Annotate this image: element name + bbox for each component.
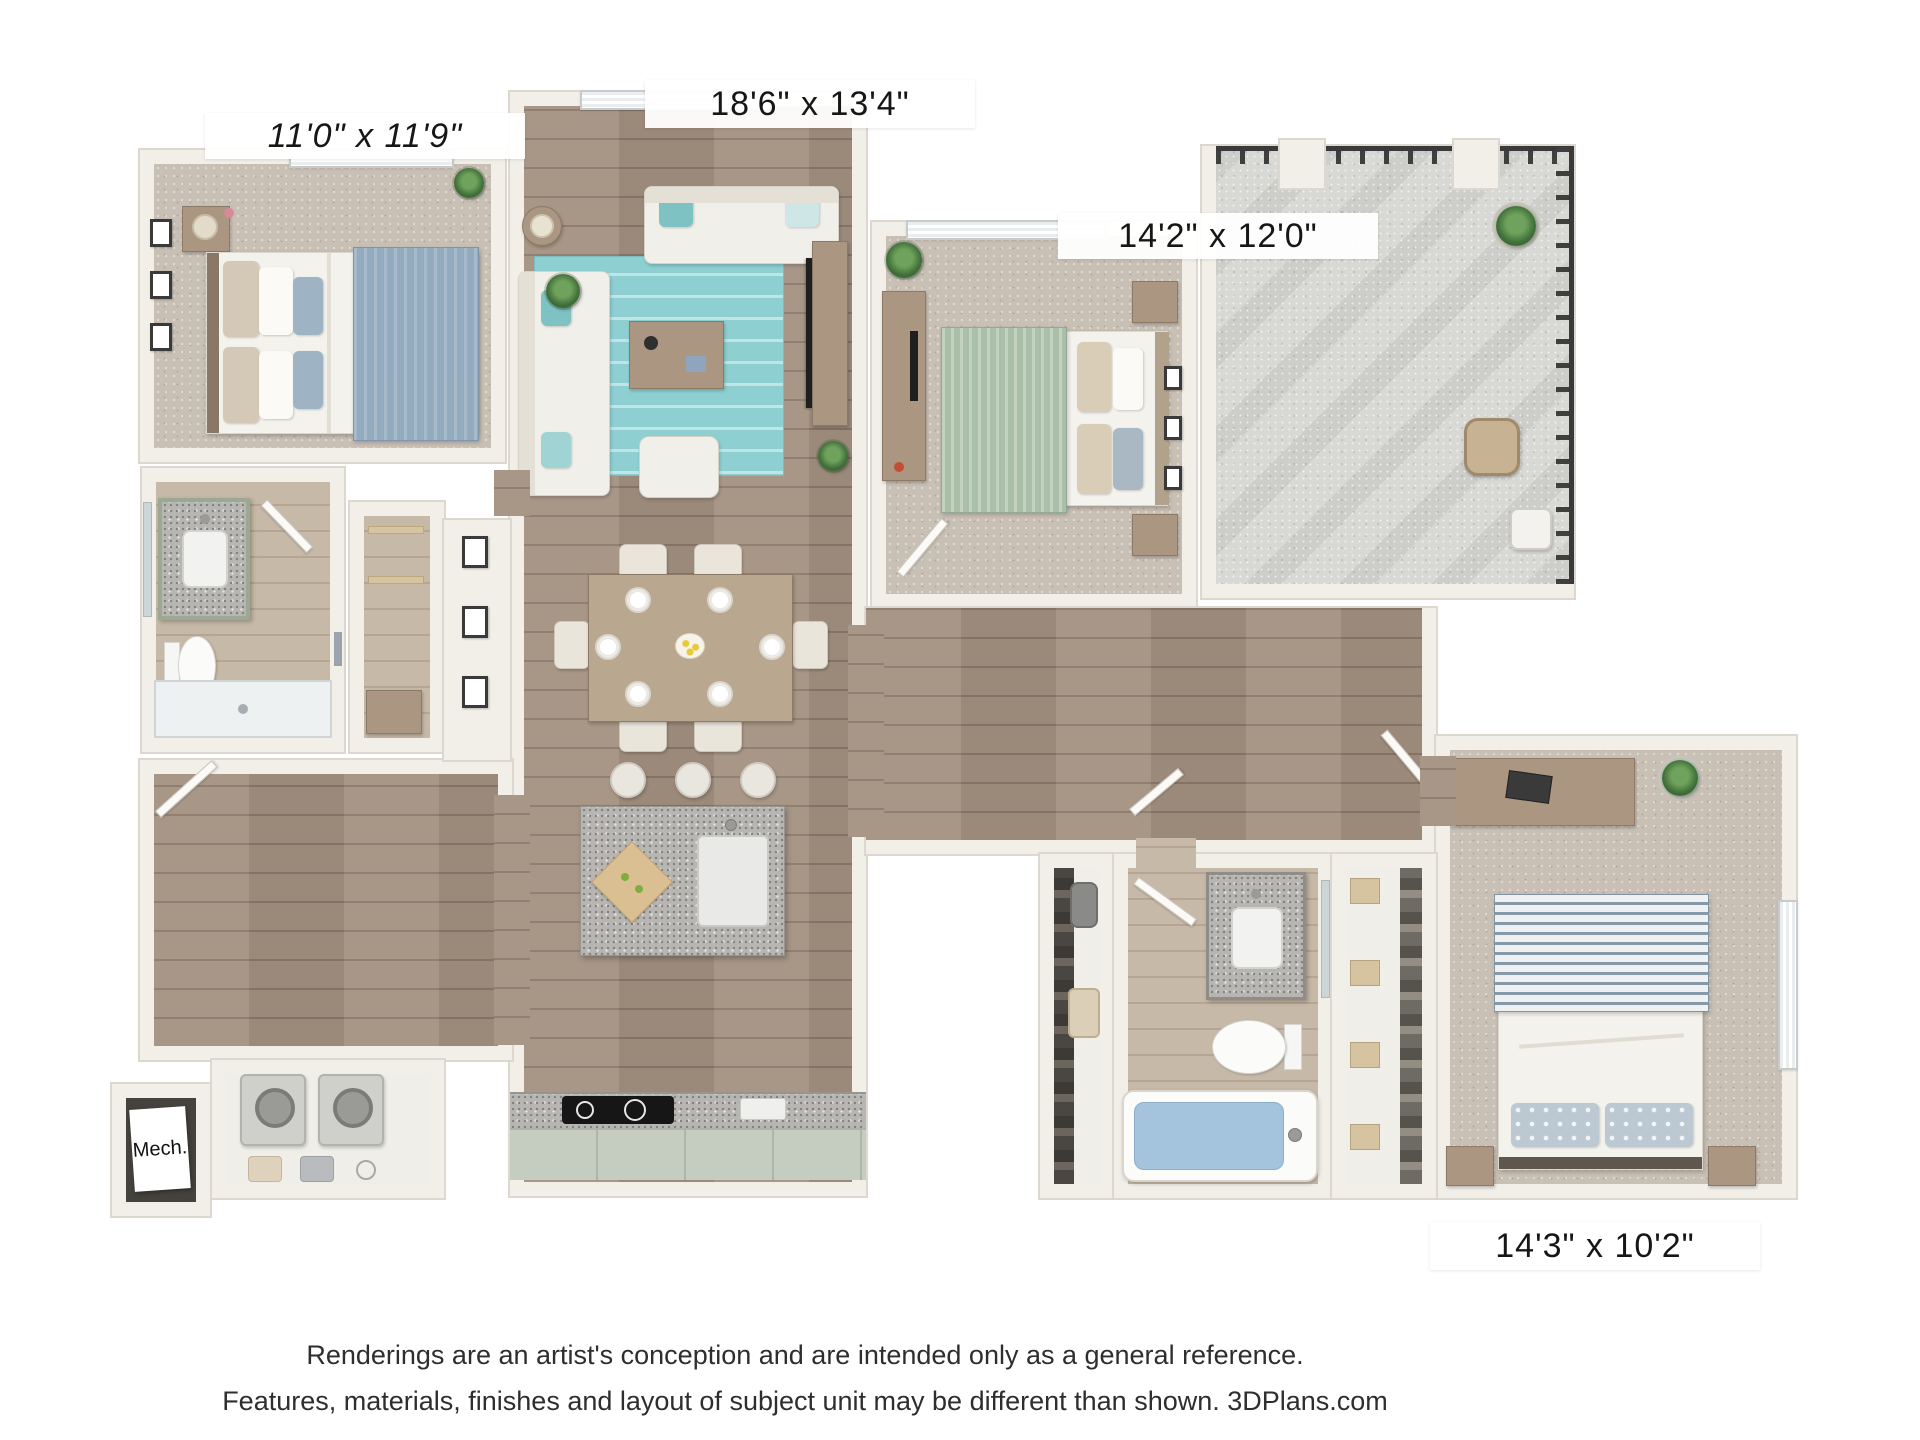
living-sofa-top	[644, 186, 839, 264]
bedroom1-dimension-text: 11'0" x 11'9"	[268, 117, 462, 156]
bedroom-2	[872, 222, 1196, 608]
mech-label-panel: Mech.	[129, 1106, 191, 1192]
disclaimer: Renderings are an artist's conception an…	[0, 1332, 1610, 1424]
bedroom2-bed	[946, 331, 1168, 506]
living-tv	[806, 258, 812, 408]
closet-dresser	[366, 690, 422, 734]
bedroom3-dimension-text: 14'3" x 10'2"	[1495, 1227, 1694, 1266]
mech-room: Mech.	[112, 1084, 210, 1216]
bedroom2-wall-art-icon	[1164, 466, 1182, 490]
bedroom3-plant-icon	[1662, 760, 1698, 796]
closet3-box	[1350, 1124, 1380, 1150]
bedroom1-pillow	[223, 261, 259, 337]
bedroom2-dimension-text: 14'2" x 12'0"	[1118, 217, 1317, 256]
coffee-table-book	[686, 356, 706, 372]
plate	[595, 634, 621, 660]
shower-drain	[238, 704, 248, 714]
bathroom1-towel	[334, 632, 342, 666]
washer	[240, 1074, 306, 1146]
bedroom2-flower	[894, 462, 904, 472]
island-cutting-board	[591, 841, 673, 923]
living-lamp	[530, 214, 554, 238]
bathroom2-mirror	[1321, 880, 1330, 998]
bedroom3-nightstand	[1446, 1146, 1494, 1186]
closet-shelf	[368, 576, 424, 584]
closet3-box	[1350, 878, 1380, 904]
living-dimension-text: 18'6" x 13'4"	[710, 85, 909, 124]
floorplan-page: Mech. 11'0" x 11'9" 18'6" x 13'4" 14'2" …	[0, 0, 1920, 1440]
bedroom1-bed	[206, 252, 478, 434]
cutting-board-lime	[635, 885, 643, 893]
living-coffee-table	[629, 321, 724, 389]
opening-living-hallway	[848, 625, 884, 837]
opening-hall-living	[494, 470, 530, 516]
bedroom2-pillow	[1113, 348, 1143, 410]
island-stool	[675, 762, 711, 798]
bedroom3-pillow	[1511, 1103, 1599, 1147]
balcony-railing-top	[1216, 146, 1574, 164]
mech-label: Mech.	[132, 1136, 188, 1163]
balcony-railing-right	[1556, 146, 1574, 584]
closet-shelf	[368, 526, 424, 534]
living-dining-kitchen-area	[510, 92, 866, 1196]
laundry-cord	[356, 1160, 376, 1180]
laundry-basket	[248, 1156, 282, 1182]
bedroom3-striped-blanket	[1494, 894, 1709, 1012]
tub-water	[1134, 1102, 1284, 1170]
bathroom2-door	[1133, 877, 1197, 927]
disclaimer-line-1: Renderings are an artist's conception an…	[0, 1332, 1610, 1378]
kitchen-sink-2	[740, 1098, 786, 1120]
bedroom1-sheet-fold	[327, 253, 331, 433]
laundry-basket	[300, 1156, 334, 1182]
bathroom1-vanity	[158, 498, 250, 620]
bedroom2-dimension-label: 14'2" x 12'0"	[1058, 213, 1378, 259]
laundry-closet	[212, 1060, 444, 1198]
island-stool	[610, 762, 646, 798]
dryer	[318, 1074, 384, 1146]
bathroom1-shower	[154, 680, 332, 738]
closet3-hanging-clothes	[1400, 868, 1422, 1184]
bedroom1-wall-art-icon	[150, 323, 172, 351]
bedroom1-pillow	[259, 267, 293, 335]
cooktop-burner	[624, 1099, 646, 1121]
dryer-drum	[333, 1088, 373, 1128]
living-plant-icon	[546, 274, 580, 308]
bedroom2-door	[897, 518, 949, 577]
bedroom3-dimension-label: 14'3" x 10'2"	[1430, 1222, 1760, 1270]
bedroom1-pillow	[223, 347, 259, 423]
bedroom2-nightstand	[1132, 514, 1178, 556]
bedroom2-tv	[910, 331, 918, 401]
bathroom-2	[1114, 854, 1332, 1198]
bedroom1-lamp	[192, 214, 218, 240]
bathroom2-vanity	[1206, 872, 1306, 1000]
opening-hall-bedroom3	[1420, 756, 1456, 826]
kitchen-island	[580, 806, 785, 956]
bedroom2-green-blanket	[941, 327, 1067, 513]
dining-table	[588, 574, 793, 722]
bedroom1-pillow	[259, 351, 293, 419]
bedroom-3	[1436, 736, 1796, 1198]
coffee-table-decor	[644, 336, 658, 350]
bedroom-1	[140, 150, 505, 462]
cutting-board-lime	[621, 873, 629, 881]
balcony-chair	[1464, 418, 1520, 476]
sofa-pillow	[541, 432, 571, 468]
bedroom2-wall-art-icon	[1164, 416, 1182, 440]
gallery-frame-icon	[462, 536, 488, 568]
opening-hall-bathroom2	[1136, 838, 1196, 872]
gallery-frame-icon	[462, 676, 488, 708]
gallery-wall	[444, 520, 510, 760]
bathroom2-toilet	[1208, 1020, 1302, 1074]
bathroom1-mirror	[143, 502, 152, 617]
balcony-pillar	[1454, 140, 1498, 188]
tub-faucet	[1288, 1128, 1302, 1142]
balcony-side-table	[1510, 508, 1552, 550]
bedroom1-blue-blanket	[353, 247, 479, 441]
bedroom2-pillow	[1077, 424, 1111, 494]
dining-chair	[792, 621, 828, 669]
island-faucet	[725, 819, 737, 831]
bedroom1-pillow	[293, 351, 323, 409]
living-dimension-label: 18'6" x 13'4"	[645, 80, 975, 128]
closet2-suitcase	[1068, 988, 1100, 1038]
bedroom3-nightstand	[1708, 1146, 1756, 1186]
bedroom2-pillow	[1113, 428, 1143, 490]
island-stool	[740, 762, 776, 798]
bedroom3-sheet-fold	[1519, 1033, 1684, 1049]
bedroom1-flowers	[224, 208, 234, 218]
balcony-pillar	[1280, 140, 1324, 188]
closet3-box	[1350, 1042, 1380, 1068]
bedroom3-desk	[1450, 758, 1635, 826]
sofa-backrest	[645, 187, 838, 203]
closet3-box	[1350, 960, 1380, 986]
bedroom2-pillow	[1077, 342, 1111, 412]
bedroom1-plant-icon	[454, 168, 484, 198]
island-sink	[697, 835, 769, 927]
entry-door	[155, 760, 218, 818]
bedroom1-pillow	[293, 277, 323, 335]
bedroom2-nightstand	[1132, 281, 1178, 323]
closet-2	[1040, 854, 1114, 1198]
gallery-frame-icon	[462, 606, 488, 638]
hall-closet	[350, 502, 444, 752]
living-armchair	[639, 436, 719, 498]
closet-3	[1332, 854, 1436, 1198]
plate	[707, 587, 733, 613]
kitchen-cabinets	[510, 1128, 866, 1180]
bathroom1-door	[261, 499, 313, 553]
kitchen-cooktop	[562, 1096, 674, 1124]
bathroom2-sink	[1231, 907, 1283, 969]
bathroom1-sink	[182, 530, 228, 588]
bathroom-1	[142, 468, 344, 752]
living-plant-icon	[818, 441, 848, 471]
bedroom2-plant-icon	[886, 242, 922, 278]
dining-chair	[554, 621, 590, 669]
plate	[625, 587, 651, 613]
balcony-plant-icon	[1496, 206, 1536, 246]
washer-drum	[255, 1088, 295, 1128]
bedroom2-wall-art-icon	[1164, 366, 1182, 390]
bedroom1-wall-art-icon	[150, 271, 172, 299]
bathroom1-faucet	[200, 514, 210, 524]
bathroom2-tub	[1122, 1090, 1318, 1182]
living-tv-console	[812, 241, 848, 426]
closet2-duffel-bag	[1070, 882, 1098, 928]
bathroom2-faucet	[1251, 889, 1261, 899]
toilet-bowl	[1212, 1020, 1286, 1074]
bedroom3-pillow	[1605, 1103, 1693, 1147]
cooktop-burner	[576, 1101, 594, 1119]
bedroom3-window	[1778, 900, 1798, 1070]
bathroom2-hall-door	[1129, 768, 1184, 816]
bedroom3-bed	[1498, 898, 1703, 1170]
bedroom1-wall-art-icon	[150, 219, 172, 247]
kitchen-counter	[510, 1092, 866, 1182]
dining-centerpiece-flowers	[675, 633, 705, 659]
entry-hall	[140, 760, 512, 1060]
bedroom3-laptop	[1505, 770, 1552, 804]
bedroom2-desk	[882, 291, 926, 481]
disclaimer-line-2: Features, materials, finishes and layout…	[0, 1378, 1610, 1424]
bedroom1-headboard	[207, 253, 219, 433]
bedroom1-dimension-label: 11'0" x 11'9"	[205, 113, 525, 159]
opening-entry-kitchen	[494, 795, 530, 1045]
plate	[707, 681, 733, 707]
plate	[759, 634, 785, 660]
bedroom3-headboard	[1499, 1157, 1702, 1169]
plate	[625, 681, 651, 707]
hallway	[866, 608, 1436, 854]
sofa-backrest	[519, 272, 535, 495]
toilet-tank	[1284, 1024, 1302, 1070]
